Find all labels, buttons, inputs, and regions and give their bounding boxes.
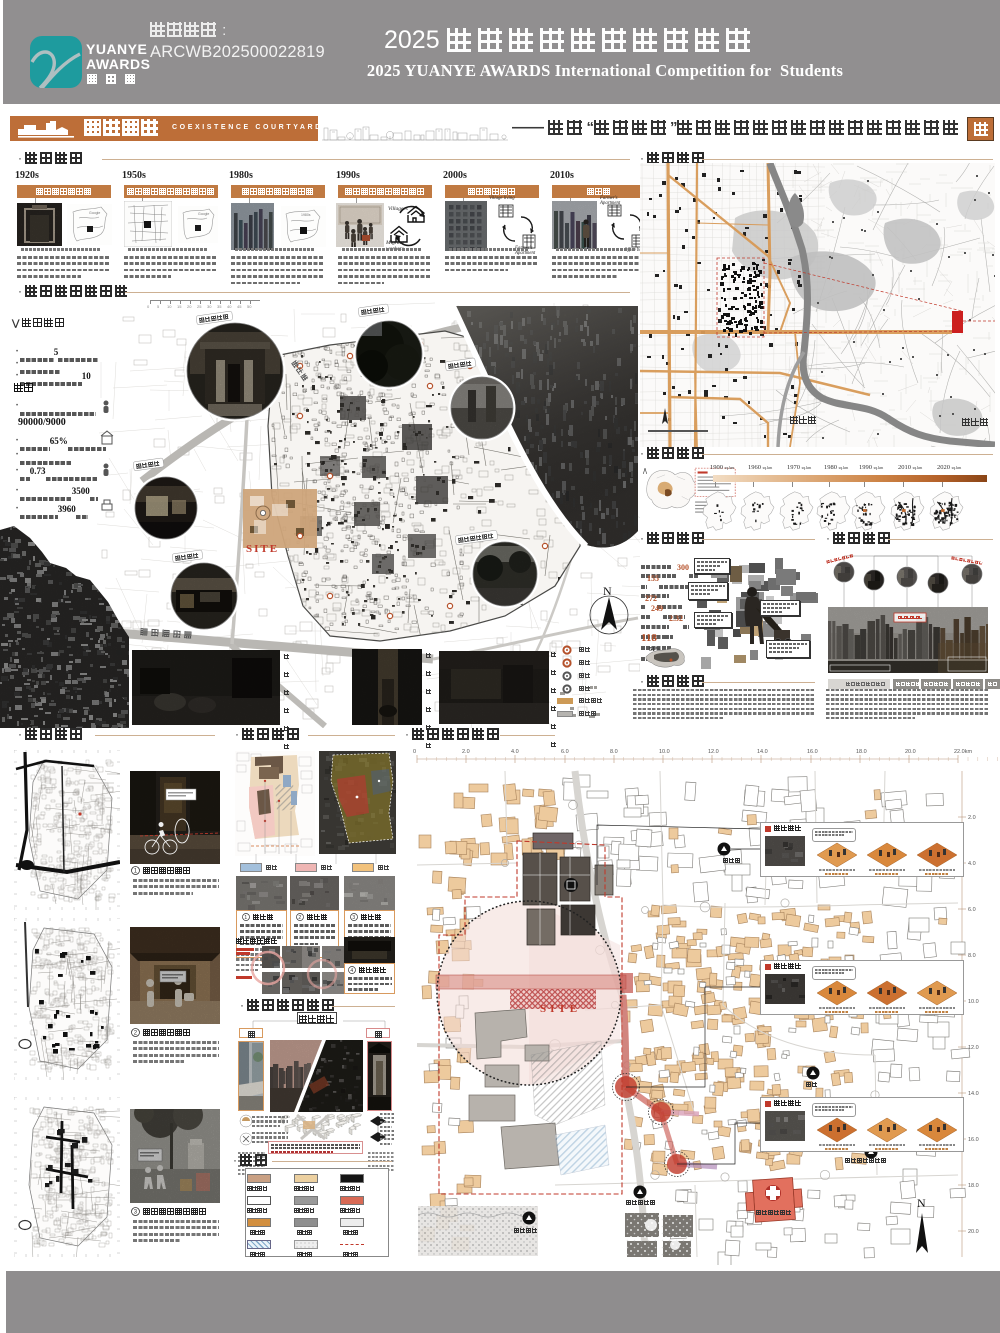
svg-text:0: 0 <box>413 749 416 755</box>
svg-text:8.0: 8.0 <box>610 749 618 755</box>
svg-text:Google: Google <box>198 212 209 216</box>
svg-text:10.0: 10.0 <box>659 749 670 755</box>
svg-text:8.0: 8.0 <box>968 953 976 959</box>
svg-text:10.0: 10.0 <box>968 999 979 1005</box>
svg-text:18.0: 18.0 <box>856 749 867 755</box>
svg-text:20.0: 20.0 <box>968 1229 979 1235</box>
svg-text:4.0: 4.0 <box>968 861 976 867</box>
svg-text:1980s: 1980s <box>301 213 311 217</box>
svg-text:2: 2 <box>134 1031 138 1037</box>
svg-text:16.0: 16.0 <box>968 1137 979 1143</box>
svg-text:16.0: 16.0 <box>807 749 818 755</box>
svg-text:2: 2 <box>298 915 301 921</box>
svg-text:1: 1 <box>134 869 138 875</box>
svg-text:14.0: 14.0 <box>757 749 768 755</box>
svg-text:Google: Google <box>89 211 100 215</box>
svg-text:22.0km: 22.0km <box>954 749 972 755</box>
svg-text:20.0: 20.0 <box>905 749 916 755</box>
svg-text:18.0: 18.0 <box>968 1183 979 1189</box>
svg-text:4: 4 <box>350 968 353 974</box>
svg-text:6.0: 6.0 <box>561 749 569 755</box>
svg-text:12.0: 12.0 <box>708 749 719 755</box>
svg-text:2.0: 2.0 <box>462 749 470 755</box>
svg-text:3: 3 <box>134 1210 138 1216</box>
svg-text:3: 3 <box>352 915 355 921</box>
svg-text:2.0: 2.0 <box>968 815 976 821</box>
svg-text:4.0: 4.0 <box>511 749 519 755</box>
svg-text:6.0: 6.0 <box>968 907 976 913</box>
svg-text:14.0: 14.0 <box>968 1091 979 1097</box>
svg-text:1: 1 <box>244 915 247 921</box>
svg-text:12.0: 12.0 <box>968 1045 979 1051</box>
